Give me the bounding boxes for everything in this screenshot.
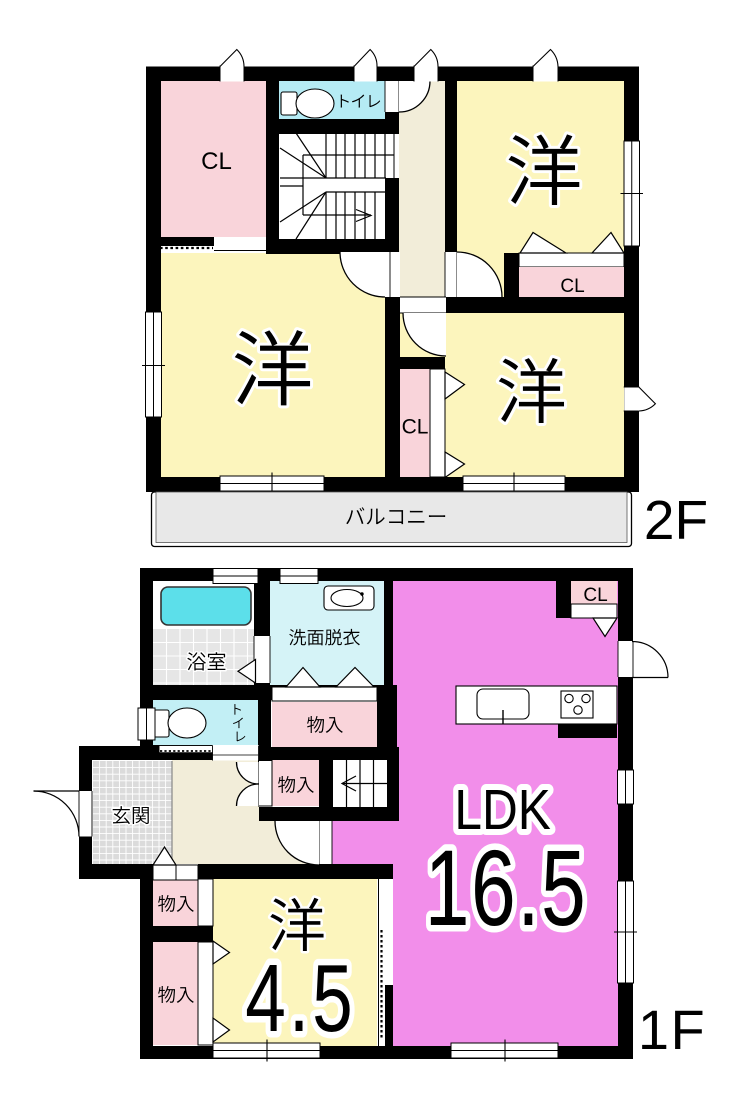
svg-text:16.5: 16.5 (425, 829, 588, 949)
svg-text:CL: CL (402, 416, 429, 439)
svg-text:1F: 1F (638, 998, 706, 1061)
svg-text:CL: CL (201, 148, 232, 175)
svg-text:2F: 2F (644, 489, 708, 551)
svg-text:CL: CL (560, 276, 584, 297)
svg-text:CL: CL (583, 585, 607, 606)
svg-text:4.5: 4.5 (245, 945, 356, 1052)
